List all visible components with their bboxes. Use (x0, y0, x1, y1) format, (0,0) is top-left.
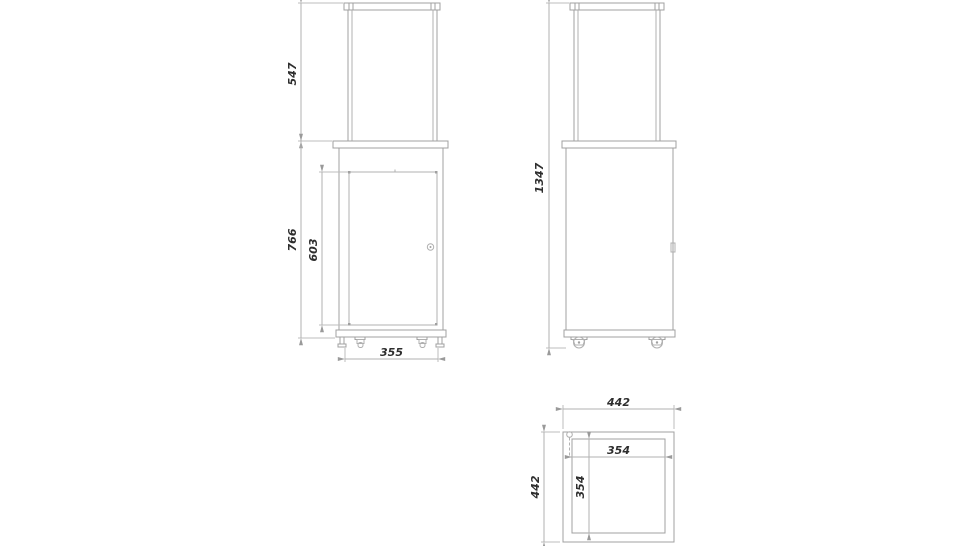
dimension-label: 354 (574, 476, 587, 499)
dimension-label: 766 (286, 228, 299, 251)
dim-total-height: 1347 (533, 3, 569, 348)
leveling-foot (340, 337, 344, 344)
top-cap (570, 3, 664, 10)
door-handle-pin (430, 246, 432, 248)
leveling-foot-pad (436, 344, 444, 347)
top-view: 442 442 354 354 (529, 396, 674, 542)
top-cap (344, 3, 440, 10)
dim-door-height: 603 (307, 172, 348, 325)
door (349, 172, 437, 325)
door-corner-pin (435, 171, 438, 174)
leveling-foot-pad (338, 344, 346, 347)
dim-glass-height: 547 (286, 3, 343, 141)
door-corner-pin (348, 171, 351, 174)
front-view: 547 766 603 355 (286, 3, 448, 362)
leveling-foot (438, 337, 442, 344)
dimension-label: 355 (380, 346, 403, 359)
dim-inner-width: 354 (572, 444, 665, 457)
dim-outer-width: 442 (563, 396, 674, 429)
body-panel (566, 148, 673, 330)
dim-outer-depth: 442 (529, 432, 560, 542)
dimension-label: 442 (529, 475, 542, 499)
table-band (562, 141, 676, 148)
valve-detail (567, 432, 573, 438)
door-corner-pin (348, 323, 351, 326)
base-band (564, 330, 675, 337)
base-band (336, 330, 446, 337)
caster-hub (656, 341, 658, 343)
table-band (333, 141, 448, 148)
caster-hub (578, 341, 580, 343)
dim-base-width: 355 (345, 346, 438, 362)
technical-drawing-canvas: 547 766 603 355 (0, 0, 970, 546)
dimension-label: 354 (607, 444, 630, 457)
dim-inner-depth: 354 (574, 439, 589, 533)
body-panel (339, 148, 443, 330)
dimension-label: 442 (606, 396, 630, 409)
drawing-svg: 547 766 603 355 (0, 0, 970, 546)
dimension-label: 1347 (533, 162, 546, 193)
dimension-label: 547 (286, 62, 299, 85)
dimension-label: 603 (307, 238, 320, 261)
door-corner-pin (435, 323, 438, 326)
side-view: 1347 (533, 3, 676, 348)
